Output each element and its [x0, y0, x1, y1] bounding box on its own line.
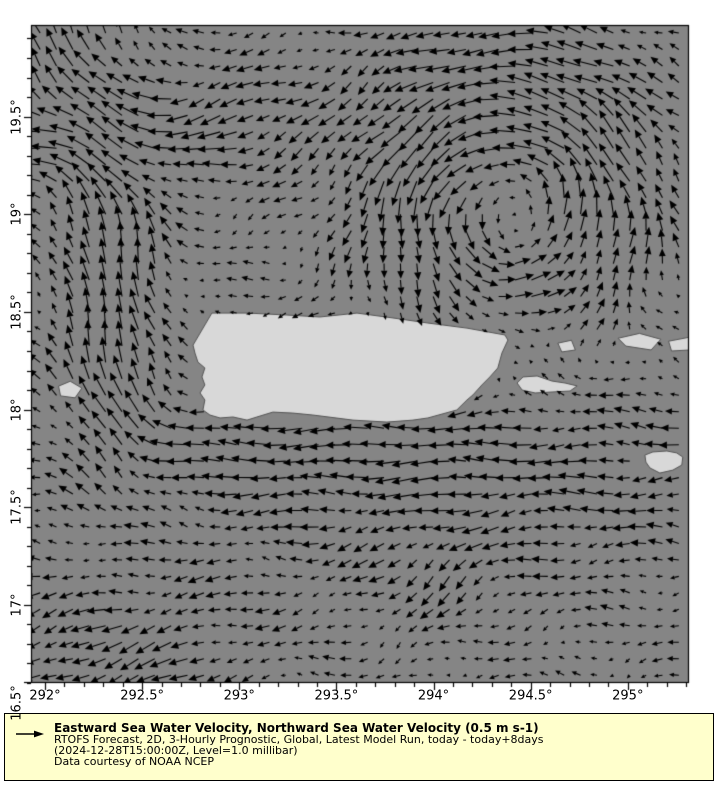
reference-vector-arrow-icon: [15, 728, 45, 740]
legend-box: Eastward Sea Water Velocity, Northward S…: [4, 713, 714, 781]
map-figure: Eastward Sea Water Velocity, Northward S…: [0, 0, 720, 800]
sea-water-velocity-quiver-map: [0, 0, 720, 800]
legend-text-block: Eastward Sea Water Velocity, Northward S…: [54, 722, 544, 767]
legend-line-data-courtesy: Data courtesy of NOAA NCEP: [54, 757, 544, 768]
